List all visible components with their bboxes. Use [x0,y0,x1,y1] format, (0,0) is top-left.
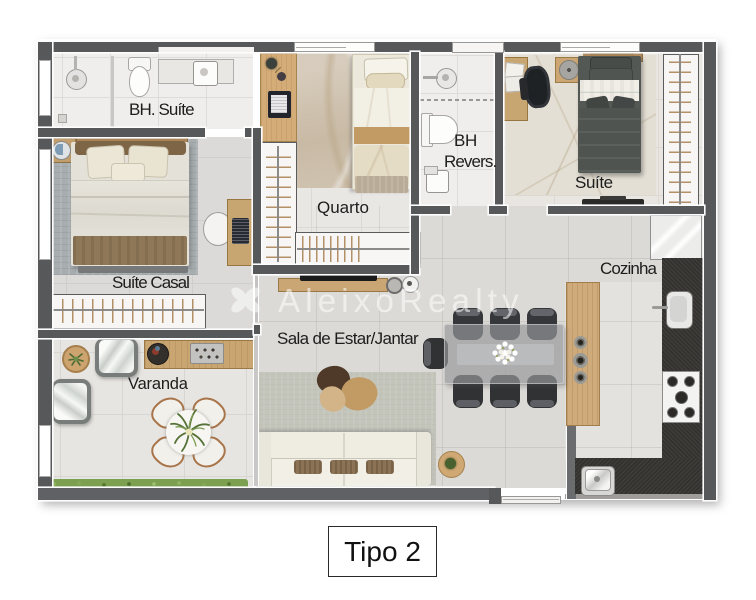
svg-text:AleixoRealty: AleixoRealty [278,282,524,319]
